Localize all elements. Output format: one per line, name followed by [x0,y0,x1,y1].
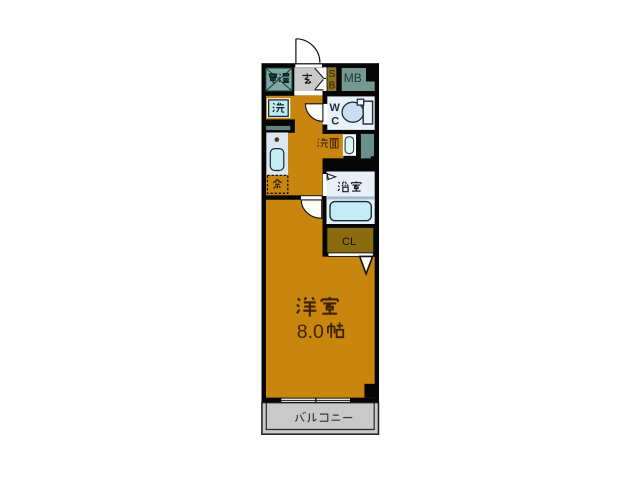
svg-text:B: B [329,81,336,92]
svg-text:W: W [330,102,341,114]
svg-text:MB: MB [344,71,362,85]
svg-text:S: S [329,69,336,80]
svg-text:CL: CL [342,236,356,248]
svg-text:8.0: 8.0 [297,321,324,343]
svg-text:C: C [331,115,339,127]
